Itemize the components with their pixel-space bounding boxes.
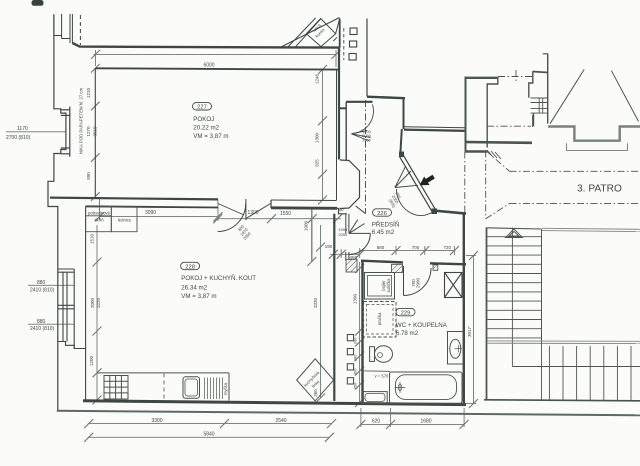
svg-text:5840: 5840 xyxy=(203,432,214,438)
svg-text:228: 228 xyxy=(185,264,195,270)
svg-text:VM = 3,87 m: VM = 3,87 m xyxy=(181,293,216,300)
svg-text:1390: 1390 xyxy=(352,293,357,304)
svg-text:800: 800 xyxy=(353,354,358,361)
svg-text:3220: 3220 xyxy=(96,297,101,308)
svg-text:POKOJ: POKOJ xyxy=(193,116,214,123)
svg-text:350: 350 xyxy=(353,382,358,389)
svg-text:NIKA POD PARAPETEM hl. 27 cm: NIKA POD PARAPETEM hl. 27 cm xyxy=(79,87,84,154)
svg-text:6.45 m2: 6.45 m2 xyxy=(372,229,395,236)
svg-text:3090: 3090 xyxy=(145,210,156,216)
svg-text:720: 720 xyxy=(443,245,451,250)
svg-text:226: 226 xyxy=(377,211,387,217)
svg-text:880: 880 xyxy=(37,280,46,286)
svg-text:190: 190 xyxy=(325,244,333,249)
svg-text:20.22 m2: 20.22 m2 xyxy=(193,124,219,131)
svg-text:3017: 3017 xyxy=(467,326,472,337)
svg-text:1300: 1300 xyxy=(314,132,319,143)
svg-text:v = 570: v = 570 xyxy=(375,374,390,379)
svg-text:WC + KOUPELNA: WC + KOUPELNA xyxy=(396,322,448,329)
svg-text:skříň: skříň xyxy=(94,218,104,223)
svg-text:2000: 2000 xyxy=(416,277,421,288)
svg-text:26.34 m2: 26.34 m2 xyxy=(181,285,207,292)
svg-text:1200: 1200 xyxy=(89,355,94,366)
svg-text:potravinová: potravinová xyxy=(88,211,110,216)
svg-text:3300: 3300 xyxy=(151,418,162,424)
svg-text:825: 825 xyxy=(314,159,319,167)
svg-text:PŘEDSÍŇ: PŘEDSÍŇ xyxy=(372,220,400,228)
svg-text:1550: 1550 xyxy=(280,211,291,217)
svg-text:1300: 1300 xyxy=(247,210,258,216)
svg-text:sušička: sušička xyxy=(386,278,391,293)
svg-text:700: 700 xyxy=(412,245,420,250)
svg-text:6000: 6000 xyxy=(203,63,214,69)
svg-text:3. PATRO: 3. PATRO xyxy=(577,184,622,195)
svg-text:1510: 1510 xyxy=(90,233,95,244)
svg-text:2500: 2500 xyxy=(362,138,370,142)
svg-text:450: 450 xyxy=(353,368,358,375)
svg-text:880: 880 xyxy=(377,245,385,250)
svg-text:lednice: lednice xyxy=(118,218,132,223)
svg-text:2410 (810): 2410 (810) xyxy=(30,326,55,332)
svg-text:6.78 m2: 6.78 m2 xyxy=(396,330,419,337)
svg-text:1000: 1000 xyxy=(304,220,309,231)
svg-text:2410 (810): 2410 (810) xyxy=(30,287,55,293)
svg-text:360: 360 xyxy=(313,389,318,397)
svg-text:227: 227 xyxy=(197,105,207,111)
svg-text:2050: 2050 xyxy=(338,232,348,237)
svg-text:3510: 3510 xyxy=(92,126,97,137)
svg-text:90: 90 xyxy=(338,207,344,212)
svg-text:VM = 3,87 m: VM = 3,87 m xyxy=(193,133,228,140)
svg-text:3330: 3330 xyxy=(313,297,318,308)
svg-text:2540: 2540 xyxy=(275,418,286,424)
svg-text:1210: 1210 xyxy=(86,87,91,98)
svg-text:pračka: pračka xyxy=(377,312,382,325)
svg-text:POKOJ + KUCHYŇ. KOUT: POKOJ + KUCHYŇ. KOUT xyxy=(181,275,256,282)
svg-text:1680: 1680 xyxy=(420,419,431,425)
svg-text:1170: 1170 xyxy=(17,126,28,132)
svg-text:2700 (810): 2700 (810) xyxy=(6,135,31,141)
svg-text:890: 890 xyxy=(86,172,91,180)
svg-text:300: 300 xyxy=(353,337,358,344)
svg-text:2000: 2000 xyxy=(90,297,95,308)
svg-text:450: 450 xyxy=(350,255,358,260)
svg-text:229: 229 xyxy=(401,311,411,317)
svg-text:1270: 1270 xyxy=(86,126,91,137)
svg-text:myčka: myčka xyxy=(223,382,228,395)
svg-text:1246: 1246 xyxy=(314,73,319,84)
svg-text:880: 880 xyxy=(37,319,46,325)
svg-text:620: 620 xyxy=(372,419,381,425)
